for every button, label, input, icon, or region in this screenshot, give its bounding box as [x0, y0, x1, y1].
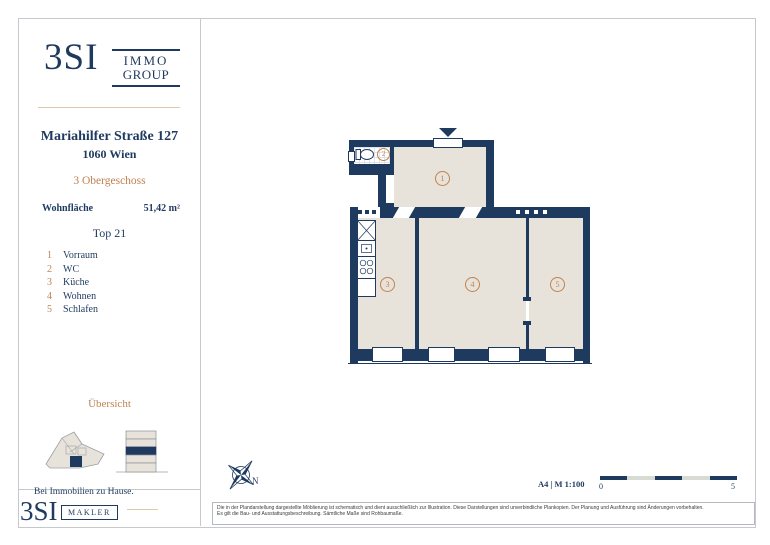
door-vorraum-opening	[386, 175, 394, 203]
sink-icon	[358, 221, 376, 241]
format-scale-label: A4 | M 1:100	[538, 479, 585, 489]
wall-left-mid	[378, 175, 386, 209]
entrance-door	[433, 138, 463, 148]
door-jamb-bottom	[523, 321, 531, 325]
glazing-square	[534, 210, 538, 214]
counter-icon	[358, 279, 376, 297]
glazing-square	[543, 210, 547, 214]
wall-top	[349, 140, 494, 147]
scale-segment	[627, 476, 654, 480]
scale-zero-label: 0	[599, 482, 603, 491]
toilet-icon	[355, 148, 375, 162]
glazing-square	[525, 210, 529, 214]
floorplan-drawing: 1 2 3 4 5	[0, 0, 770, 545]
glazing-square	[372, 210, 376, 214]
floorplan-page: 3SI IMMO GROUP Mariahilfer Straße 127 10…	[0, 0, 770, 545]
plan-number-schlafen: 5	[550, 277, 565, 292]
glazing-square	[358, 210, 362, 214]
scale-segment	[600, 476, 627, 480]
door-jamb-top	[523, 297, 531, 301]
disclaimer-line2: Es gilt die Bau- und Ausstattungsbeschre…	[217, 511, 750, 517]
plan-number-wc: 2	[377, 148, 390, 161]
wall-kueche-wohnen	[415, 218, 419, 349]
wall-wohnen-schlafen-lower	[526, 325, 529, 349]
facade-outer-line	[348, 363, 592, 364]
plan-number-kueche: 3	[380, 277, 395, 292]
window-wohnen-right	[488, 347, 520, 362]
wall-right-bottom	[583, 207, 590, 363]
plan-number-vorraum: 1	[435, 171, 450, 186]
window-kueche	[372, 347, 403, 362]
wall-right-top	[486, 140, 494, 210]
wall-wc-right	[390, 147, 394, 175]
north-label: N	[252, 476, 259, 486]
window-wohnen-left	[428, 347, 455, 362]
scale-bar	[600, 476, 737, 480]
plan-number-wohnen: 4	[465, 277, 480, 292]
entrance-arrow-icon	[439, 128, 457, 137]
wall-wohnen-schlafen-upper	[526, 218, 529, 300]
kitchen-unit-icons	[357, 220, 376, 297]
dishwasher-icon	[358, 241, 376, 257]
scale-segment	[710, 476, 737, 480]
compass-icon: N	[221, 455, 263, 495]
glazing-square	[516, 210, 520, 214]
scale-five-label: 5	[731, 482, 735, 491]
wc-window	[348, 151, 355, 162]
scale-segment	[682, 476, 709, 480]
wall-wc-bottom	[349, 164, 390, 175]
disclaimer-box: Die in der Plandarstellung dargestellte …	[212, 502, 755, 525]
stove-icon	[358, 257, 376, 279]
glazing-square	[365, 210, 369, 214]
scale-segment	[655, 476, 682, 480]
window-schlafen	[545, 347, 575, 362]
